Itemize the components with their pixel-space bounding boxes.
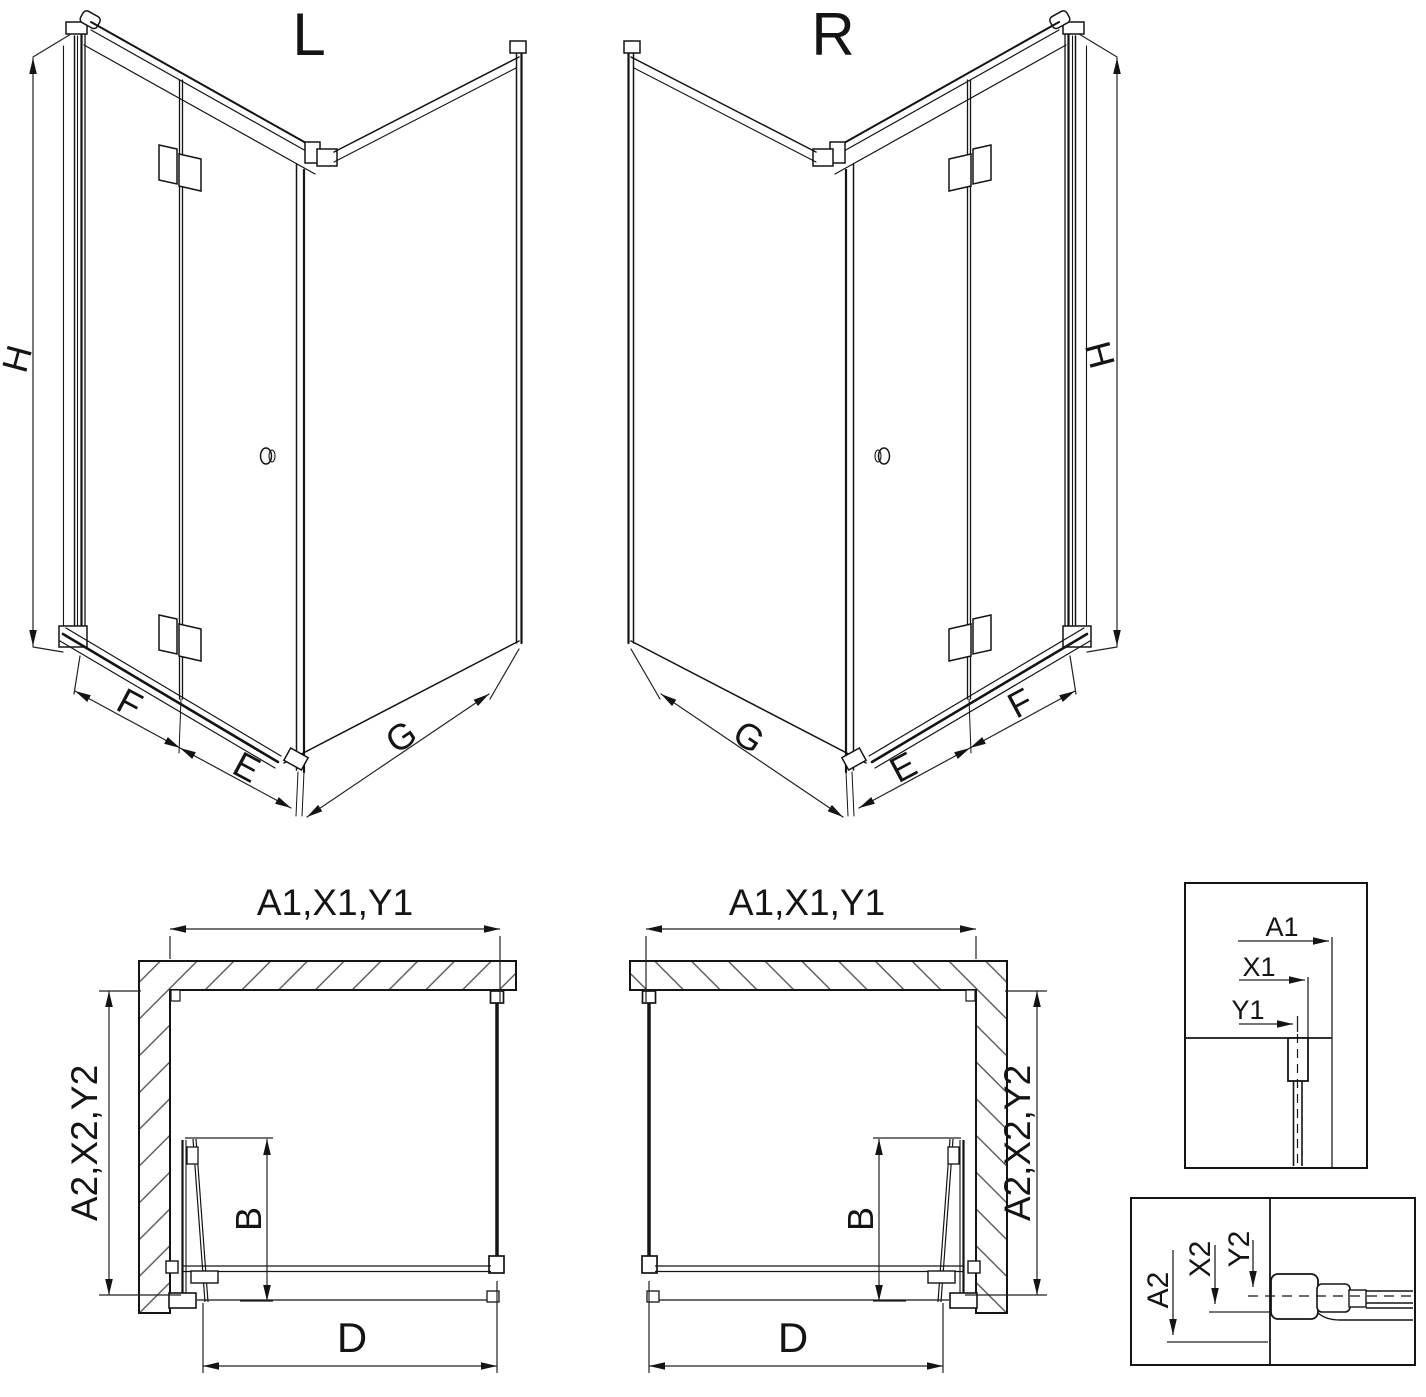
- iso-left-dim-e-label: E: [227, 743, 267, 790]
- drawing-sheet: L H F E G R H F E G A1,X1,Y1 A2,X2,Y2 B …: [0, 0, 1426, 1397]
- plan-right-dim-b-label: B: [840, 1207, 881, 1231]
- iso-left-title-label: L: [292, 1, 325, 68]
- detail-bottom-a2-label: A2: [1142, 1272, 1175, 1309]
- detail-bottom-y2-label: Y2: [1223, 1231, 1256, 1268]
- detail-bottom-x2-label: X2: [1184, 1241, 1217, 1278]
- plan-left-dim-width-label: A1,X1,Y1: [257, 882, 413, 923]
- iso-right-dim-e-label: E: [883, 743, 923, 790]
- plan-view-right: [630, 929, 1047, 1373]
- detail-top-y1-label: Y1: [1231, 995, 1264, 1025]
- plan-left-dim-d-label: D: [337, 1314, 367, 1361]
- iso-left-dim-g-label: G: [378, 712, 424, 762]
- plan-left-dim-b-label: B: [228, 1207, 269, 1231]
- shower-enclosure-technical-drawing: L H F E G R H F E G A1,X1,Y1 A2,X2,Y2 B …: [0, 0, 1426, 1397]
- iso-right-title-label: R: [811, 1, 854, 68]
- plan-right-dim-depth-label: A2,X2,Y2: [997, 1065, 1038, 1221]
- iso-left-dim-h-label: H: [0, 341, 40, 377]
- iso-right-dim-f-label: F: [1001, 680, 1040, 727]
- iso-view-right: [624, 9, 1117, 817]
- detail-top-a1-label: A1: [1265, 912, 1298, 942]
- plan-right-dim-d-label: D: [778, 1314, 808, 1361]
- plan-right-dim-width-label: A1,X1,Y1: [729, 882, 885, 923]
- iso-left-dim-f-label: F: [111, 680, 150, 727]
- plan-left-dim-depth-label: A2,X2,Y2: [64, 1065, 105, 1221]
- plan-view-left: [99, 929, 516, 1373]
- iso-right-dim-g-label: G: [726, 712, 772, 762]
- detail-top-x1-label: X1: [1242, 952, 1275, 982]
- iso-right-dim-h-label: H: [1077, 337, 1123, 373]
- iso-view-left: [33, 9, 526, 817]
